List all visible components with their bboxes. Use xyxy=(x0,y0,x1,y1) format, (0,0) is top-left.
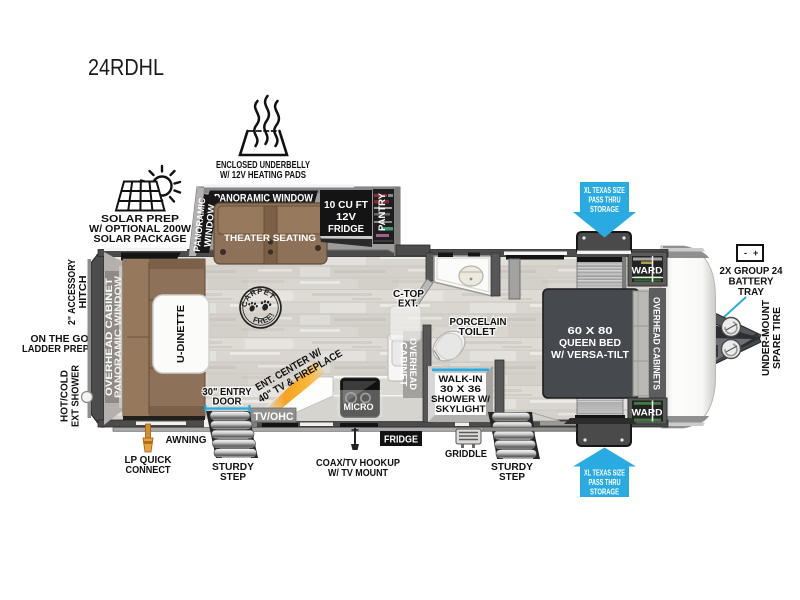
svg-text:10 CU FT: 10 CU FT xyxy=(324,199,369,211)
svg-text:OVERHEADCABINET: OVERHEADCABINET xyxy=(399,338,419,390)
svg-text:STEP: STEP xyxy=(499,472,525,483)
svg-text:-: - xyxy=(744,248,747,258)
svg-text:THEATER SEATING: THEATER SEATING xyxy=(224,233,316,244)
svg-text:TOILET: TOILET xyxy=(459,327,496,338)
svg-text:SOLAR PACKAGE: SOLAR PACKAGE xyxy=(94,234,187,245)
svg-text:2X GROUP 24: 2X GROUP 24 xyxy=(720,266,783,277)
svg-text:STORAGE: STORAGE xyxy=(590,487,619,497)
svg-text:QUEEN BED: QUEEN BED xyxy=(559,338,621,349)
svg-text:WARD: WARD xyxy=(632,407,663,418)
svg-text:EXT.: EXT. xyxy=(398,299,418,310)
svg-text:PASS THRU: PASS THRU xyxy=(589,195,621,205)
svg-text:STEP: STEP xyxy=(220,472,246,483)
svg-text:LADDER PREP: LADDER PREP xyxy=(22,344,89,355)
svg-text:PASS THRU: PASS THRU xyxy=(589,477,621,487)
svg-text:W/ VERSA-TILT: W/ VERSA-TILT xyxy=(551,350,629,361)
svg-text:STORAGE: STORAGE xyxy=(590,204,619,214)
svg-text:TV/OHC: TV/OHC xyxy=(254,411,294,423)
svg-text:W/ 12V HEATING PADS: W/ 12V HEATING PADS xyxy=(220,170,306,181)
svg-text:PANTRY: PANTRY xyxy=(376,192,387,231)
svg-text:U-DINETTE: U-DINETTE xyxy=(176,305,187,363)
svg-text:XL TEXAS SIZE: XL TEXAS SIZE xyxy=(584,185,625,195)
svg-text:FRIDGE: FRIDGE xyxy=(384,435,418,446)
svg-text:MICRO: MICRO xyxy=(344,401,374,412)
svg-text:FRIDGE: FRIDGE xyxy=(328,223,364,235)
svg-text:PANORAMIC WINDOW: PANORAMIC WINDOW xyxy=(113,275,123,398)
svg-text:TRAY: TRAY xyxy=(738,287,764,298)
svg-text:60 X 80: 60 X 80 xyxy=(568,326,614,337)
svg-text:AWNING: AWNING xyxy=(166,435,207,446)
svg-text:SKYLIGHT: SKYLIGHT xyxy=(436,404,486,415)
svg-text:24RDHL: 24RDHL xyxy=(88,54,164,80)
svg-text:+: + xyxy=(753,248,758,258)
svg-text:OVERHEAD CABINETS: OVERHEAD CABINETS xyxy=(652,297,662,390)
svg-text:12V: 12V xyxy=(336,211,356,223)
svg-text:HOT/COLDEXT SHOWER: HOT/COLDEXT SHOWER xyxy=(60,364,82,427)
svg-text:DOOR: DOOR xyxy=(213,397,243,408)
svg-text:GRIDDLE: GRIDDLE xyxy=(445,449,487,460)
svg-text:W/ TV MOUNT: W/ TV MOUNT xyxy=(328,468,388,479)
svg-text:BATTERY: BATTERY xyxy=(729,277,774,288)
svg-text:UNDER-MOUNTSPARE TIRE: UNDER-MOUNTSPARE TIRE xyxy=(761,300,783,376)
svg-text:CONNECT: CONNECT xyxy=(126,465,171,476)
svg-text:WARD: WARD xyxy=(632,265,663,276)
svg-text:XL TEXAS SIZE: XL TEXAS SIZE xyxy=(584,468,625,478)
